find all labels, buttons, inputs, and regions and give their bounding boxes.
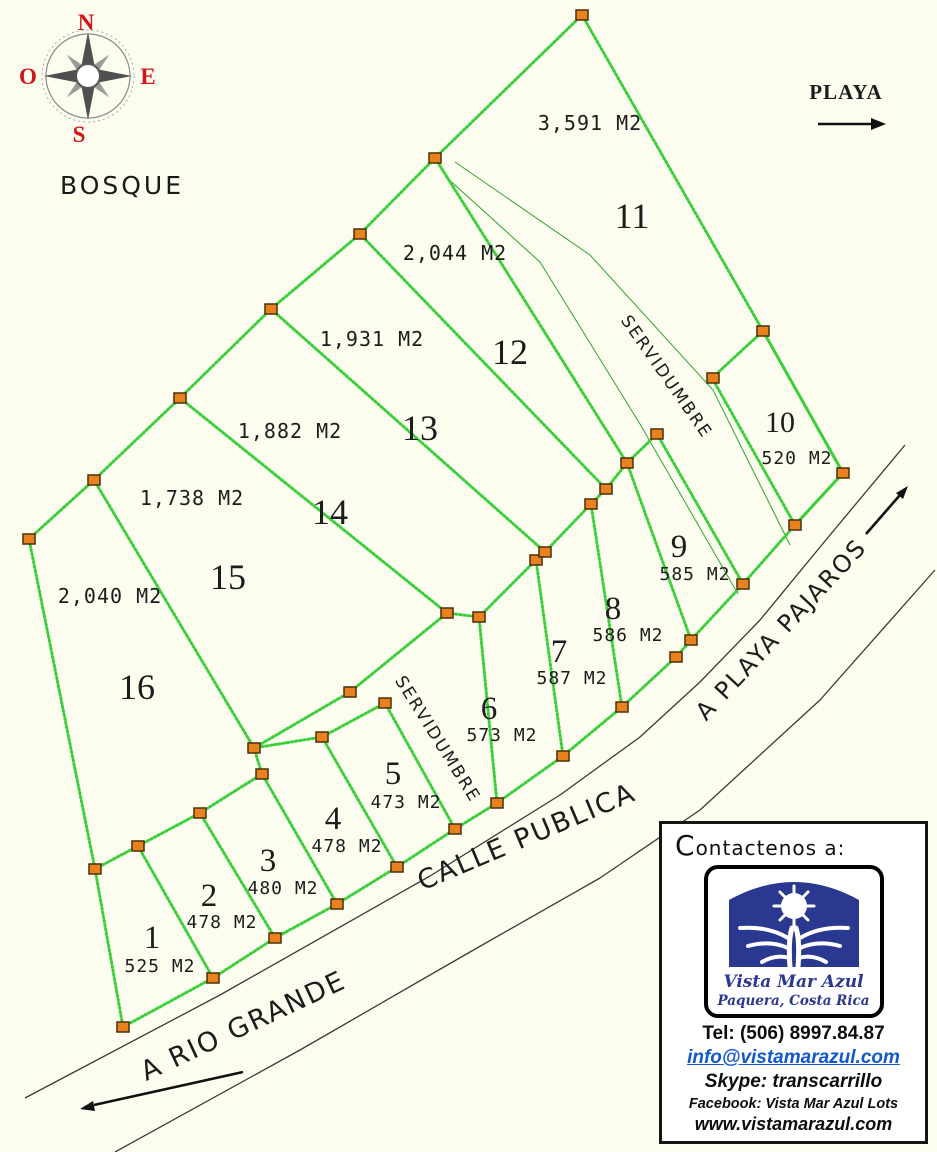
survey-vertex-marker [621,458,633,468]
lot-9-number: 9 [671,529,688,565]
contact-skype: Skype: transcarrillo [664,1071,923,1093]
calle-publica-label: CALLE PUBLICA [413,777,640,897]
survey-vertex-marker [379,698,391,708]
lot-11-area: 3,591 M2 [538,111,642,135]
lot-5-number: 5 [385,756,402,792]
survey-vertex-marker [265,304,277,314]
survey-vertex-marker [685,635,697,645]
survey-vertex-marker [441,608,453,618]
survey-vertex-marker [89,864,101,874]
survey-vertex-marker [491,798,503,808]
survey-vertex-marker [207,973,219,983]
lot-5-area: 473 M2 [370,792,441,813]
contact-website: www.vistamarazul.com [664,1114,923,1135]
survey-vertex-marker [256,769,268,779]
survey-vertex-marker [354,229,366,239]
survey-vertex-marker [757,326,769,336]
contact-phone: Tel: (506) 8997.84.87 [664,1023,923,1045]
lot-7-area: 587 M2 [536,668,607,689]
survey-vertex-marker [473,612,485,622]
logo-title: Vista Mar Azul [713,973,875,993]
lot-7-number: 7 [551,634,568,670]
a-playa-pajaros-label: A PLAYA PAJAROS [690,533,872,725]
logo-subtitle: Paquera, Costa Rica [713,993,875,1009]
survey-vertex-marker [429,153,441,163]
lot-14-area: 1,882 M2 [238,419,342,443]
survey-vertex-marker [600,484,612,494]
survey-vertex-marker [557,751,569,761]
survey-vertex-marker [576,10,588,20]
lot-2-area: 478 M2 [186,912,257,933]
survey-vertex-marker [449,824,461,834]
lot-16-area: 2,040 M2 [58,584,162,608]
lot-1-area: 525 M2 [124,956,195,977]
survey-vertex-marker [651,429,663,439]
playa-pajaros-arrow [866,495,900,534]
lot-10-area: 520 M2 [761,448,832,469]
survey-vertex-marker [616,702,628,712]
survey-vertex-marker [194,808,206,818]
survey-vertex-marker [789,520,801,530]
lot-8-number: 8 [605,591,622,627]
compass-north: N [78,10,95,35]
lot-13-number: 13 [402,408,438,448]
survey-vertex-marker [837,468,849,478]
plat-map-page: N E S O BOSQUE PLAYA SERVIDUMBRE SERVIDU… [0,0,937,1152]
lot-8-area: 586 M2 [592,625,663,646]
lot-4-number: 4 [325,801,342,837]
survey-vertex-marker [23,534,35,544]
contact-facebook: Facebook: Vista Mar Azul Lots [664,1096,923,1112]
a-rio-grande-label: A RIO GRANDE [136,965,351,1087]
survey-vertex-marker [707,373,719,383]
lot-3-area: 480 M2 [247,878,318,899]
lot-11-number: 11 [615,196,650,236]
survey-vertex-marker [585,499,597,509]
survey-vertex-marker [670,652,682,662]
lot-6-number: 6 [481,691,498,727]
survey-vertex-marker [331,899,343,909]
compass-rose: N E S O [19,10,156,147]
survey-vertex-marker [269,933,281,943]
lot-12-number: 12 [492,332,528,372]
logo-box: Vista Mar Azul Paquera, Costa Rica [704,865,884,1018]
survey-vertex-marker [344,687,356,697]
survey-vertex-marker [316,732,328,742]
lot-1-number: 1 [144,920,161,956]
contact-email-link[interactable]: info@vistamarazul.com [664,1047,923,1069]
contact-card: Contactenos a: [659,821,928,1144]
lot-6-area: 573 M2 [466,725,537,746]
survey-vertex-marker [248,743,260,753]
contact-heading: Contactenos a: [664,829,923,862]
lot-14-number: 14 [312,492,348,532]
lot-13-area: 1,931 M2 [320,327,424,351]
survey-vertex-marker [174,393,186,403]
lot-9-area: 585 M2 [659,564,730,585]
lot-12-area: 2,044 M2 [403,241,507,265]
lot-3-number: 3 [260,843,277,879]
survey-vertex-marker [132,841,144,851]
lot-10-number: 10 [765,406,795,439]
survey-vertex-marker [117,1022,129,1032]
survey-vertex-marker [737,579,749,589]
bosque-label: BOSQUE [60,171,184,200]
survey-vertex-marker [88,475,100,485]
vista-mar-azul-logo-icon [728,876,860,968]
lot-15-area: 1,738 M2 [140,486,244,510]
compass-south: S [73,122,86,147]
lot-16-number: 16 [119,667,155,707]
lot-2-number: 2 [201,878,218,914]
compass-east: E [140,64,155,89]
compass-west: O [19,64,37,89]
lot-15-number: 15 [210,557,246,597]
survey-vertex-marker [391,862,403,872]
survey-vertex-marker [539,547,551,557]
playa-label: PLAYA [809,80,882,104]
lot-4-area: 478 M2 [311,836,382,857]
